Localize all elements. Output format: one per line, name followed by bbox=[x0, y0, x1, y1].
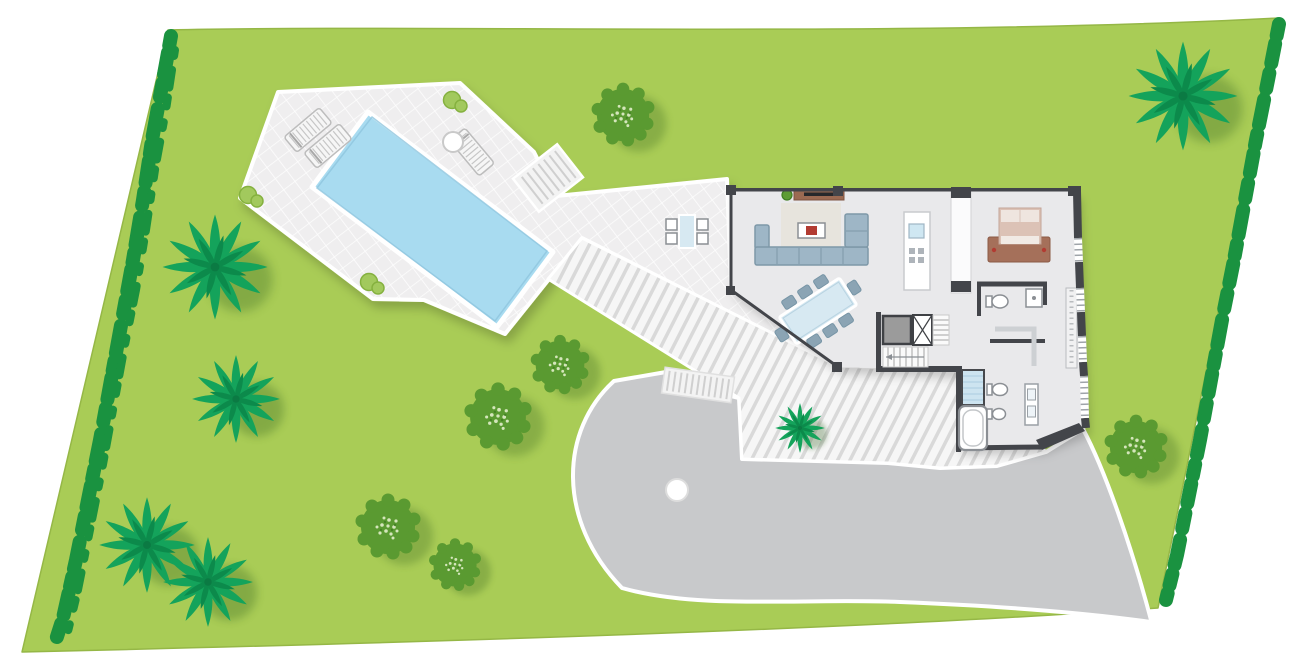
coffee-table bbox=[798, 223, 825, 238]
elevator bbox=[883, 316, 911, 344]
site-plan-canvas: Villa site plan - ground floor with pool… bbox=[0, 0, 1302, 670]
outdoor-table bbox=[679, 215, 695, 248]
kitchen-partition-wall bbox=[951, 187, 971, 293]
terrace-side-table bbox=[443, 132, 463, 152]
coffee-table-decor bbox=[806, 226, 817, 235]
kitchen-sink bbox=[909, 224, 924, 238]
glass-wall-west bbox=[730, 189, 733, 291]
bidet bbox=[987, 409, 1006, 420]
bathtub bbox=[959, 406, 987, 450]
turning-circle-marker bbox=[666, 479, 688, 501]
site-plan-drawing: Villa site plan - ground floor with pool… bbox=[0, 0, 1302, 670]
column bbox=[833, 186, 843, 196]
wardrobe-strip bbox=[1066, 288, 1077, 368]
double-vanity bbox=[1025, 384, 1038, 425]
stair-upper-run bbox=[933, 315, 949, 345]
kitchen-island bbox=[904, 212, 930, 290]
toilet bbox=[987, 384, 1008, 396]
elevator-shaft bbox=[913, 315, 932, 345]
toilet bbox=[986, 295, 1008, 308]
stair-lower-run bbox=[883, 347, 928, 367]
